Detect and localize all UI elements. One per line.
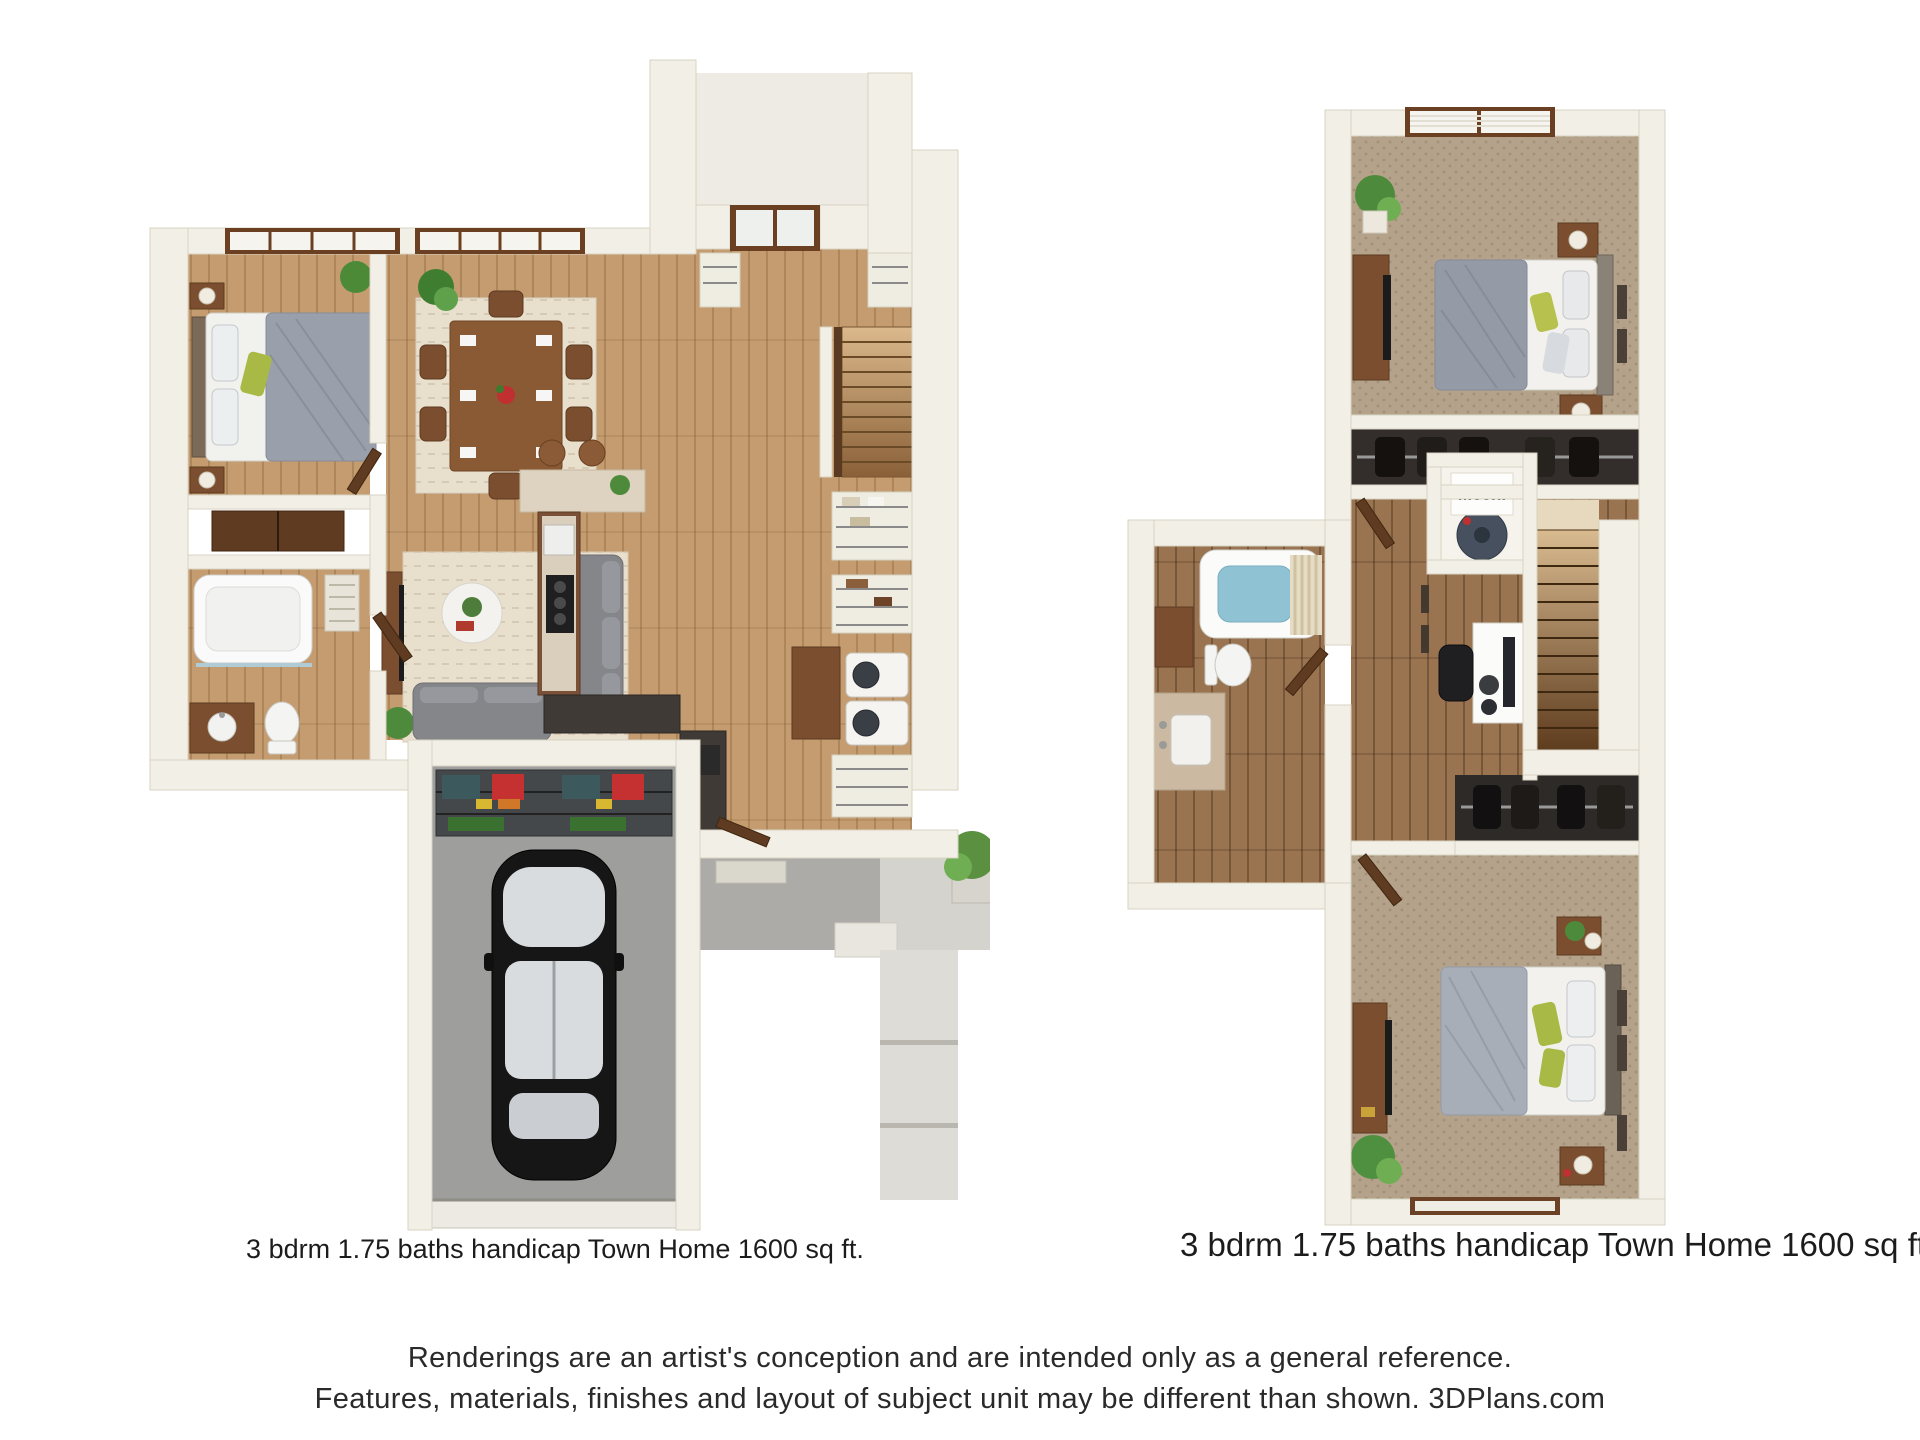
second-floor-caption: 3 bdrm 1.75 baths handicap Town Home 160… (1180, 1226, 1780, 1264)
potted-plant (340, 261, 372, 293)
mech-wall (1427, 560, 1537, 574)
car-hood (503, 867, 605, 947)
burner (554, 613, 566, 625)
pillow (212, 389, 238, 445)
car-mirror (614, 953, 624, 971)
dining-chair (566, 345, 592, 379)
bar-stool (579, 440, 605, 466)
pantry-item (842, 497, 860, 506)
pillow (1567, 981, 1595, 1037)
heater-valve (1463, 517, 1471, 525)
bath-sink (1171, 715, 1211, 765)
desk-speaker (1479, 675, 1499, 695)
wall-art (1421, 585, 1429, 613)
pillow (1563, 271, 1589, 319)
tv (399, 585, 404, 681)
dining-chair (489, 473, 523, 499)
walkway-step (880, 1123, 958, 1128)
pillow (212, 325, 238, 381)
closet-wall (1351, 415, 1639, 429)
wall-art (1421, 625, 1429, 653)
lamp (1569, 231, 1587, 249)
garage-wall-top (408, 740, 700, 766)
bedroom3-window-glass (1415, 1201, 1555, 1211)
car (484, 850, 624, 1180)
entry-french-door (730, 205, 820, 251)
water-heater-top (1474, 527, 1490, 543)
bath-hall-wall (1325, 520, 1351, 645)
island-plant (610, 475, 630, 495)
floor-plan-sheet: Mech. (0, 0, 1920, 1440)
storage-bin-yellow (476, 799, 492, 809)
stair-railing (834, 327, 842, 477)
kitchen-lower-counter (544, 695, 680, 733)
dining-area (416, 291, 596, 499)
storage-bin-yellow (596, 799, 612, 809)
storage-bin-orange (498, 799, 520, 809)
burner (554, 597, 566, 609)
garage-wall-right (676, 740, 700, 1230)
entry-wall-segment (696, 205, 730, 249)
hanging-clothes (1375, 437, 1405, 477)
lawn-mower (448, 817, 504, 831)
bathtub-inner (206, 587, 300, 651)
coffee-table-plant (462, 597, 482, 617)
wall-art (1617, 1115, 1627, 1151)
bar-stool (539, 440, 565, 466)
entry-wall-segment (820, 205, 868, 249)
interior-wall (370, 495, 386, 615)
stair-bottom-wall (1523, 750, 1639, 775)
toilet-bowl (1215, 644, 1251, 686)
office-chair (1439, 645, 1473, 701)
mech-wall (1427, 467, 1441, 560)
place-setting (460, 335, 476, 346)
place-setting (460, 390, 476, 401)
toilet-bowl (265, 702, 299, 744)
storage-bin (442, 775, 480, 799)
bedroom2-window (1405, 107, 1555, 137)
mech-wall (1427, 453, 1537, 467)
interior-wall (188, 555, 370, 569)
exterior-wall-right (912, 150, 958, 790)
dryer-door (853, 710, 879, 736)
bedroom3-wall (1351, 841, 1455, 855)
pillow (1567, 1045, 1595, 1101)
loveseat-cushion (484, 687, 542, 703)
dining-chair (566, 407, 592, 441)
exterior-wall-left-lower (1325, 883, 1351, 1225)
stair-side-wall (1599, 520, 1639, 750)
table-flowers-leaf (496, 385, 504, 393)
interior-wall (370, 254, 386, 443)
car-mirror (484, 953, 494, 971)
sofa-cushion (602, 561, 620, 613)
bath-hall-wall (1325, 705, 1351, 883)
stairs (1537, 530, 1599, 750)
entry-closet-right (868, 253, 912, 307)
disclaimer-line-2: Features, materials, finishes and layout… (0, 1383, 1920, 1416)
wing-wall-left (1128, 520, 1154, 909)
place-setting (536, 335, 552, 346)
entry-column-left (650, 60, 696, 254)
closet-wall (1455, 841, 1639, 855)
hanging-clothes (1557, 785, 1585, 829)
entry-column-right (868, 73, 912, 253)
place-setting (536, 390, 552, 401)
desk (1473, 623, 1523, 723)
nightstand-plant (1565, 921, 1585, 941)
garage-door (408, 1200, 700, 1228)
walkway (880, 950, 958, 1200)
bed-headboard (192, 317, 206, 457)
mug (1563, 1169, 1571, 1177)
bedroom1-window (225, 228, 400, 254)
closet-item (874, 597, 892, 606)
stair-wall (1523, 453, 1537, 780)
bath-cabinet (1155, 607, 1193, 667)
disclaimer-line-1: Renderings are an artist's conception an… (0, 1342, 1920, 1375)
first-floor-caption: 3 bdrm 1.75 baths handicap Town Home 160… (120, 1234, 990, 1265)
exterior-wall-right (1639, 110, 1665, 1225)
loveseat-cushion (420, 687, 478, 703)
wing-wall-bottom (1128, 883, 1351, 909)
lamp (1574, 1156, 1592, 1174)
garage-wall-left (408, 740, 432, 1230)
interior-wall (370, 671, 386, 760)
mech-room: Mech. (1441, 467, 1523, 560)
bathtub-water (1218, 566, 1292, 622)
desk-monitor (1503, 637, 1515, 707)
car-rear-glass (509, 1093, 599, 1139)
plant-pot (1363, 211, 1387, 233)
pantry-item (868, 497, 884, 506)
bathroom-wall-bottom (150, 760, 422, 790)
bath-shelf (325, 575, 359, 631)
storage-bin-red (612, 774, 644, 800)
lamp (199, 472, 215, 488)
dining-chair (420, 345, 446, 379)
patio-walkway (695, 831, 990, 1200)
stair-wall (820, 327, 832, 477)
interior-wall (188, 495, 370, 509)
closet-wall (1351, 485, 1639, 499)
dining-chair (420, 407, 446, 441)
lawn-mower (570, 817, 626, 831)
wall-art (1617, 329, 1627, 363)
mud-cabinet (792, 647, 840, 739)
stair-landing (1537, 500, 1599, 530)
faucet (1159, 721, 1167, 729)
faucet (1159, 741, 1167, 749)
coffee-table-book (456, 621, 474, 631)
floor-plant (382, 707, 414, 739)
faucet (219, 712, 225, 718)
lamp (199, 288, 215, 304)
toilet-tank (268, 741, 296, 754)
washer-door (853, 662, 879, 688)
pantry-item (850, 517, 870, 526)
hanging-clothes (1597, 785, 1625, 829)
burner (554, 581, 566, 593)
decor-box (1361, 1107, 1375, 1117)
walkway-step (880, 1040, 958, 1045)
sofa-cushion (602, 617, 620, 669)
place-setting (460, 447, 476, 458)
exterior-wall-left (150, 228, 188, 790)
stairs-down (1537, 500, 1599, 750)
closet-item (846, 579, 868, 588)
first-floor-plan (120, 55, 990, 1235)
dining-chair (489, 291, 523, 317)
wall-art (1617, 1035, 1627, 1071)
floor-plant (1376, 1158, 1402, 1184)
entry-closet-left (700, 253, 740, 307)
wall-art (1617, 285, 1627, 319)
tv (1385, 1020, 1392, 1115)
bedroom3-closet (1455, 775, 1639, 841)
hanging-clothes (1473, 785, 1501, 829)
desk-lamp (1481, 699, 1497, 715)
second-floor-plan: Mech. (1105, 85, 1685, 1235)
entry-porch-floor (696, 73, 868, 207)
hanging-clothes (1511, 785, 1539, 829)
lamp (1585, 933, 1601, 949)
kitchen-sink (544, 525, 574, 555)
tv (1383, 275, 1391, 360)
hanging-clothes (1569, 437, 1599, 477)
bedroom1-closet (212, 511, 344, 551)
bed-headboard (1597, 255, 1613, 395)
dining-window (415, 228, 585, 254)
wing-wall-top (1128, 520, 1351, 546)
door-step (716, 861, 786, 883)
exterior-wall-left-upper (1325, 110, 1351, 520)
potted-plant (434, 287, 458, 311)
storage-bin (562, 775, 600, 799)
storage-bin-red (492, 774, 524, 800)
wall-art (1617, 990, 1627, 1026)
